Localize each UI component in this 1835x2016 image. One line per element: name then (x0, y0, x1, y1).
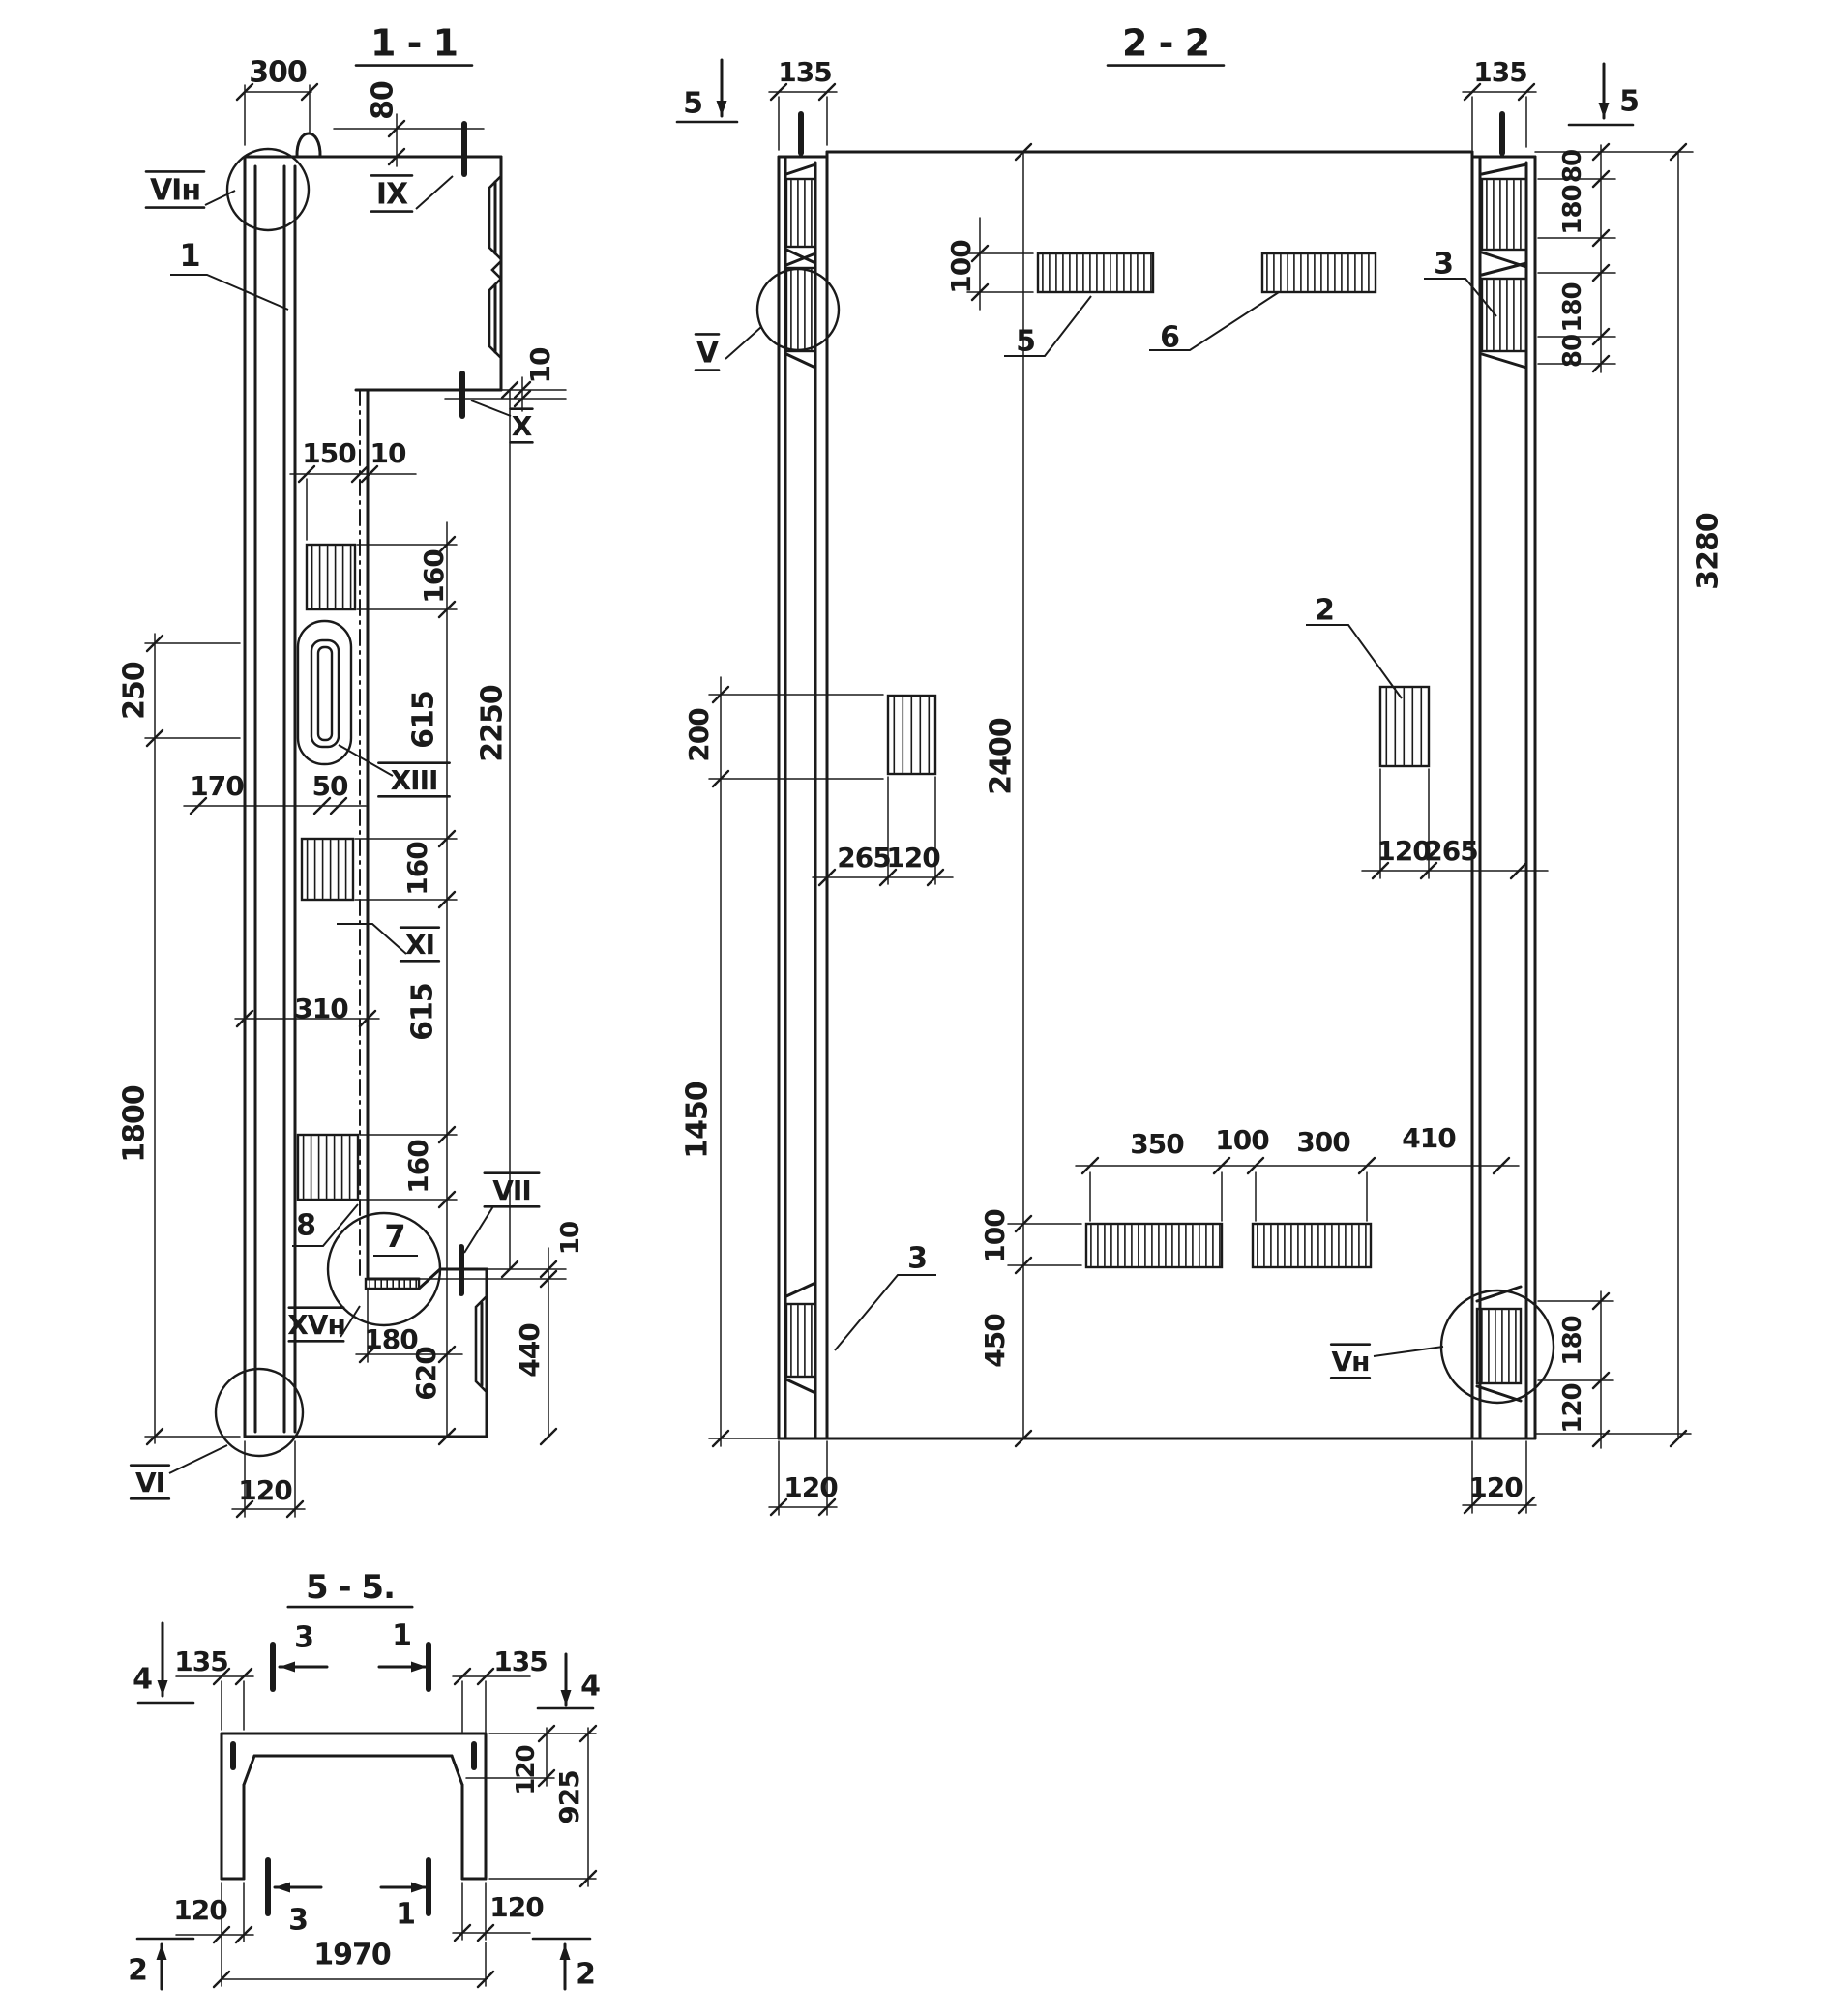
dim-440-group: 440 (514, 1323, 546, 1378)
dim-135-left: 135 (174, 1645, 227, 1677)
dim-50-group: 50 (312, 770, 348, 802)
detail-xi-group: XI (400, 928, 439, 962)
dim-120-right-low: 120 (1558, 1383, 1587, 1433)
dim-310: 310 (294, 993, 348, 1024)
callout-5-group: 5 (1016, 325, 1035, 359)
section-arrow-head (1599, 103, 1610, 118)
hatch-area (1477, 1309, 1521, 1383)
dim-120-bottom-left-group: 120 (784, 1471, 838, 1503)
dim-120-bottom-left: 120 (784, 1471, 838, 1503)
dim-100-top-group: 100 (945, 240, 977, 294)
marker-1-top: 1 (392, 1619, 411, 1653)
detail-xv-n: XVн (287, 1309, 345, 1341)
section-arrow-head (411, 1883, 427, 1893)
callout-7-group: 7 (384, 1218, 404, 1255)
part-outline (1477, 1386, 1521, 1401)
dim-350: 350 (1130, 1128, 1184, 1160)
leader-line (416, 176, 453, 209)
dim-1970: 1970 (313, 1939, 391, 1972)
dim-80-a-group: 80 (1558, 150, 1587, 183)
section-title-2-2-group: 2 - 2 (1108, 21, 1224, 65)
detail-v-n-group: Vн (1331, 1345, 1370, 1379)
dim-925-group: 925 (553, 1770, 585, 1823)
dim-120-left: 120 (886, 842, 940, 874)
dim-10-mid: 10 (370, 437, 406, 469)
dim-1970-group: 1970 (313, 1939, 391, 1972)
dim-120-bottom-right: 120 (489, 1891, 544, 1923)
marker-3-bottom-group: 3 (288, 1904, 308, 1938)
section-title-5-5: 5 - 5. (306, 1568, 395, 1607)
dim-120-flange: 120 (512, 1745, 541, 1794)
part-outline (244, 1756, 254, 1785)
hatch-area (298, 1135, 358, 1200)
callout-7: 7 (384, 1218, 404, 1255)
dim-2400: 2400 (985, 718, 1019, 795)
hatch-area (1038, 253, 1153, 292)
dim-135-left: 135 (778, 56, 831, 88)
part-outline (786, 1379, 815, 1393)
marker-5-right: 5 (1619, 85, 1639, 119)
dim-160-3-group: 160 (402, 1140, 434, 1194)
dim-80-group: 80 (367, 81, 400, 120)
section-title-1-1: 1 - 1 (370, 21, 458, 64)
dim-615-1: 615 (407, 691, 441, 749)
dim-2250: 2250 (476, 685, 510, 762)
callout-1: 1 (179, 237, 199, 274)
section-title-5-5-group: 5 - 5. (288, 1568, 412, 1607)
detail-ix-group: IX (371, 175, 412, 211)
leader-line (471, 400, 511, 416)
callout-3-top-group: 3 (1434, 248, 1453, 282)
callout-3-low: 3 (907, 1242, 927, 1276)
section-arrow-head (157, 1944, 167, 1960)
dim-200: 200 (683, 708, 715, 762)
dim-180-a: 180 (1558, 185, 1587, 234)
dim-120-bottom-group: 120 (238, 1474, 292, 1506)
hatch-area (1086, 1224, 1222, 1267)
dim-620: 620 (410, 1347, 442, 1401)
marker-4-right-group: 4 (580, 1670, 600, 1704)
dim-180-right-group: 180 (1558, 1316, 1587, 1365)
dim-10-mid-group: 10 (370, 437, 406, 469)
part-outline (1482, 164, 1526, 174)
dim-120-left-group: 120 (886, 842, 940, 874)
dim-135-right: 135 (493, 1645, 547, 1677)
dim-265-right-group: 265 (1424, 835, 1477, 867)
dim-120-right: 120 (1376, 835, 1431, 867)
detail-circle (1441, 1290, 1554, 1403)
dim-265-left-group: 265 (837, 842, 890, 874)
callout-2-group: 2 (1315, 594, 1334, 628)
leader-line (337, 924, 406, 954)
dim-300: 300 (249, 56, 307, 90)
dim-180-right: 180 (1558, 1316, 1587, 1365)
dim-120-right-low-group: 120 (1558, 1383, 1587, 1433)
dim-300-group: 300 (1296, 1126, 1350, 1158)
detail-circle (216, 1369, 303, 1456)
leader-line (835, 1275, 936, 1350)
detail-vii: VII (492, 1174, 531, 1206)
dim-450: 450 (979, 1314, 1011, 1368)
dim-10-bottom: 10 (556, 1222, 585, 1255)
dim-265-right: 265 (1424, 835, 1477, 867)
detail-v-group: V (696, 334, 720, 370)
dim-135-right: 135 (1473, 56, 1526, 88)
dim-300-group: 300 (249, 56, 307, 90)
dim-925: 925 (553, 1770, 585, 1823)
dim-80: 80 (367, 81, 400, 120)
dim-135-left-group: 135 (778, 56, 831, 88)
dim-250-group: 250 (118, 662, 152, 720)
detail-vii-group: VII (485, 1173, 539, 1207)
dim-120-flange-group: 120 (512, 1745, 541, 1794)
section-arrow-head (717, 101, 727, 116)
dim-135-right-group: 135 (1473, 56, 1526, 88)
dim-615-2: 615 (406, 983, 440, 1041)
marker-3-top-group: 3 (294, 1621, 313, 1655)
lifting-loop (297, 133, 320, 157)
dim-120-bottom-right-group: 120 (489, 1891, 544, 1923)
section-arrow-head (280, 1662, 295, 1673)
hatch-area (1262, 253, 1376, 292)
marker-5-right-group: 5 (1619, 85, 1639, 119)
dim-100-low: 100 (979, 1209, 1011, 1263)
slot-detail (318, 647, 332, 740)
dim-80-a: 80 (1558, 150, 1587, 183)
dim-310-group: 310 (294, 993, 348, 1024)
dim-180-b-group: 180 (1558, 282, 1587, 332)
marker-3-top: 3 (294, 1621, 313, 1655)
dim-1450: 1450 (681, 1082, 715, 1159)
drawing-sheet: 1 - 130080VIн1IX10X15010160250615XIII170… (0, 0, 1835, 2016)
marker-1-bottom: 1 (396, 1898, 415, 1932)
marker-4-right: 4 (580, 1670, 600, 1704)
dim-160-2: 160 (401, 842, 433, 896)
marker-3-bottom: 3 (288, 1904, 308, 1938)
dim-410-group: 410 (1402, 1122, 1456, 1154)
hatch-area (307, 545, 355, 609)
dim-1800-group: 1800 (118, 1085, 152, 1163)
detail-vi-bottom: VI (135, 1467, 164, 1498)
detail-xiii: XIII (391, 764, 438, 796)
detail-vi-n-top-group: VIн (146, 171, 204, 207)
dim-100-mid-group: 100 (1215, 1124, 1269, 1156)
callout-8-group: 8 (296, 1209, 315, 1243)
detail-xiii-group: XIII (378, 763, 449, 797)
leader-line (1424, 279, 1496, 316)
callout-6: 6 (1160, 321, 1179, 355)
dim-10-top: 10 (524, 347, 556, 383)
dim-3280-group: 3280 (1692, 513, 1726, 590)
leader-line (169, 1445, 227, 1473)
section-1-1: 1 - 130080VIн1IX10X15010160250615XIII170… (118, 21, 586, 1517)
dim-2400-group: 2400 (985, 718, 1019, 795)
marker-2-left-group: 2 (128, 1954, 147, 1988)
dim-120-bottom-left-group: 120 (173, 1894, 227, 1926)
marker-5-left: 5 (683, 87, 702, 121)
dim-80-b-group: 80 (1558, 335, 1587, 368)
marker-4-left-group: 4 (133, 1663, 152, 1697)
callout-3-top: 3 (1434, 248, 1453, 282)
detail-xv-n-group: XVн (287, 1308, 345, 1342)
part-outline (1482, 354, 1526, 368)
dim-160-2-group: 160 (401, 842, 433, 896)
callout-8: 8 (296, 1209, 315, 1243)
part-outline (786, 164, 815, 174)
slot-detail (298, 621, 351, 764)
section-5-5: 5 - 5.311351354412092531120120197022 (128, 1568, 600, 1992)
marker-2-left: 2 (128, 1954, 147, 1988)
dim-120-bottom-right-group: 120 (1468, 1471, 1523, 1503)
marker-1-top-group: 1 (392, 1619, 411, 1653)
detail-x-group: X (511, 409, 533, 443)
dim-200-group: 200 (683, 708, 715, 762)
dim-440: 440 (514, 1323, 546, 1378)
dim-80-b: 80 (1558, 335, 1587, 368)
dim-620-group: 620 (410, 1347, 442, 1401)
detail-x: X (512, 410, 533, 442)
dim-170: 170 (190, 770, 244, 802)
callout-5: 5 (1016, 325, 1035, 359)
dim-300: 300 (1296, 1126, 1350, 1158)
leader-line (1374, 1347, 1443, 1356)
part-outline (1482, 263, 1526, 275)
marker-5-left-group: 5 (683, 87, 702, 121)
section-arrow-head (275, 1883, 290, 1893)
dim-160-1-group: 160 (418, 549, 450, 604)
dim-160-3: 160 (402, 1140, 434, 1194)
marker-2-right-group: 2 (576, 1958, 595, 1992)
dim-100-top: 100 (945, 240, 977, 294)
dim-250: 250 (118, 662, 152, 720)
dim-2250-group: 2250 (476, 685, 510, 762)
dim-100-mid: 100 (1215, 1124, 1269, 1156)
dim-615-2-group: 615 (406, 983, 440, 1041)
part-outline (786, 1283, 815, 1296)
dim-120-bottom-right: 120 (1468, 1471, 1523, 1503)
callout-1-group: 1 (179, 237, 199, 274)
drawing-canvas: 1 - 130080VIн1IX10X15010160250615XIII170… (0, 0, 1835, 2016)
detail-v: V (696, 337, 720, 371)
callout-3-low-group: 3 (907, 1242, 927, 1276)
dim-615-1-group: 615 (407, 691, 441, 749)
dim-120-bottom-left: 120 (173, 1894, 227, 1926)
callout-6-group: 6 (1160, 321, 1179, 355)
dim-160-1: 160 (418, 549, 450, 604)
leader-line (170, 275, 288, 310)
callout-2: 2 (1315, 594, 1334, 628)
detail-v-n: Vн (1331, 1346, 1369, 1378)
dim-180-b: 180 (1558, 282, 1587, 332)
section-arrow-head (158, 1680, 168, 1696)
dim-135-right-group: 135 (493, 1645, 547, 1677)
dim-135-left-group: 135 (174, 1645, 227, 1677)
dim-3280: 3280 (1692, 513, 1726, 590)
dim-180-a-group: 180 (1558, 185, 1587, 234)
detail-xi: XI (405, 929, 434, 961)
dim-150: 150 (302, 437, 356, 469)
dim-450-group: 450 (979, 1314, 1011, 1368)
part-outline (786, 354, 815, 368)
marker-2-right: 2 (576, 1958, 595, 1992)
section-title-1-1-group: 1 - 1 (356, 21, 472, 65)
marker-1-bottom-group: 1 (396, 1898, 415, 1932)
marker-4-left: 4 (133, 1663, 152, 1697)
dim-150-group: 150 (302, 437, 356, 469)
dim-10-top-group: 10 (524, 347, 556, 383)
section-arrow-head (560, 1944, 571, 1960)
detail-vi-n-top: VIн (150, 174, 200, 208)
slot-detail (311, 640, 339, 747)
dim-410: 410 (1402, 1122, 1456, 1154)
detail-ix: IX (376, 178, 408, 212)
section-2-2: 2 - 21355V100563135580180180803280200240… (677, 21, 1726, 1515)
dim-1450-group: 1450 (681, 1082, 715, 1159)
dim-50: 50 (312, 770, 348, 802)
leader-line (464, 1206, 493, 1253)
section-arrow-head (561, 1690, 572, 1705)
detail-vi-bottom-group: VI (131, 1466, 169, 1499)
part-outline (452, 1756, 462, 1785)
dim-10-bottom-group: 10 (556, 1222, 585, 1255)
dim-170-group: 170 (190, 770, 244, 802)
dim-120-bottom: 120 (238, 1474, 292, 1506)
dim-350-group: 350 (1130, 1128, 1184, 1160)
dim-100-low-group: 100 (979, 1209, 1011, 1263)
dim-120-right-group: 120 (1376, 835, 1431, 867)
section-title-2-2: 2 - 2 (1122, 21, 1209, 64)
dim-1800: 1800 (118, 1085, 152, 1163)
dim-265-left: 265 (837, 842, 890, 874)
section-arrow-head (411, 1662, 427, 1673)
leader-line (725, 327, 761, 359)
